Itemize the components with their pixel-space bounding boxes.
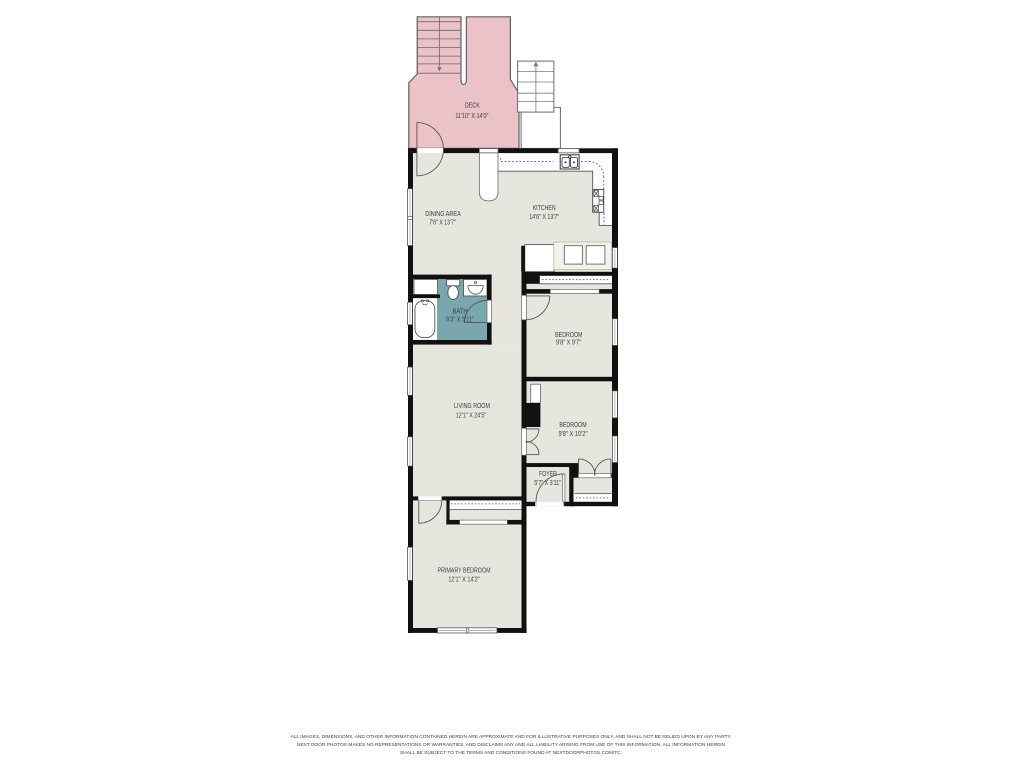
svg-text:5'7" X 3'11": 5'7" X 3'11" bbox=[534, 478, 561, 487]
svg-text:7'6" X 13'7": 7'6" X 13'7" bbox=[429, 218, 456, 227]
svg-text:LIVING ROOM: LIVING ROOM bbox=[454, 401, 490, 410]
svg-text:9'8" X 9'7": 9'8" X 9'7" bbox=[556, 338, 581, 347]
svg-text:11'10" X 14'0": 11'10" X 14'0" bbox=[455, 111, 488, 120]
svg-text:DECK: DECK bbox=[465, 101, 480, 110]
svg-text:KITCHEN: KITCHEN bbox=[533, 203, 556, 212]
svg-text:14'6" X 13'7": 14'6" X 13'7" bbox=[529, 212, 559, 221]
svg-text:SHALL BE SUBJECT TO THE TERMS: SHALL BE SUBJECT TO THE TERMS AND CONDIT… bbox=[400, 750, 622, 756]
svg-text:8'3" X 5'11": 8'3" X 5'11" bbox=[446, 314, 474, 323]
svg-text:NEXT DOOR PHOTOS MAKES NO REPR: NEXT DOOR PHOTOS MAKES NO REPRESENTATION… bbox=[297, 742, 726, 748]
svg-text:DINING AREA: DINING AREA bbox=[425, 209, 461, 218]
svg-text:FOYER: FOYER bbox=[539, 469, 557, 478]
svg-text:ALL IMAGES, DIMENSIONS, AND OT: ALL IMAGES, DIMENSIONS, AND OTHER INFORM… bbox=[291, 734, 732, 740]
svg-text:12'1" X 14'2": 12'1" X 14'2" bbox=[448, 575, 480, 584]
svg-text:12'1" X 24'5": 12'1" X 24'5" bbox=[456, 410, 487, 419]
svg-text:PRIMARY BEDROOM: PRIMARY BEDROOM bbox=[438, 565, 491, 574]
svg-text:9'8" X 10'2": 9'8" X 10'2" bbox=[559, 429, 588, 438]
svg-text:BEDROOM: BEDROOM bbox=[559, 420, 586, 429]
